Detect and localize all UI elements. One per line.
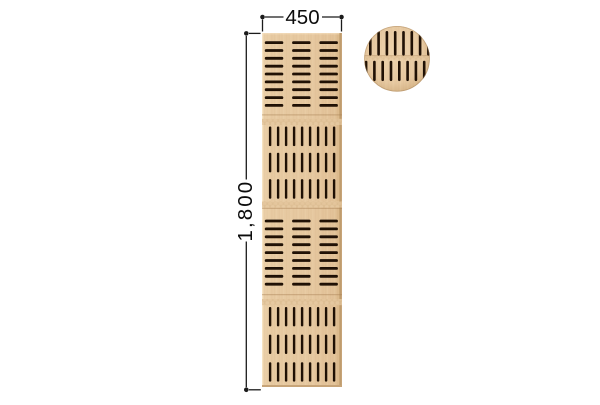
svg-text:1,800: 1,800: [234, 180, 257, 242]
svg-text:450: 450: [285, 6, 319, 29]
